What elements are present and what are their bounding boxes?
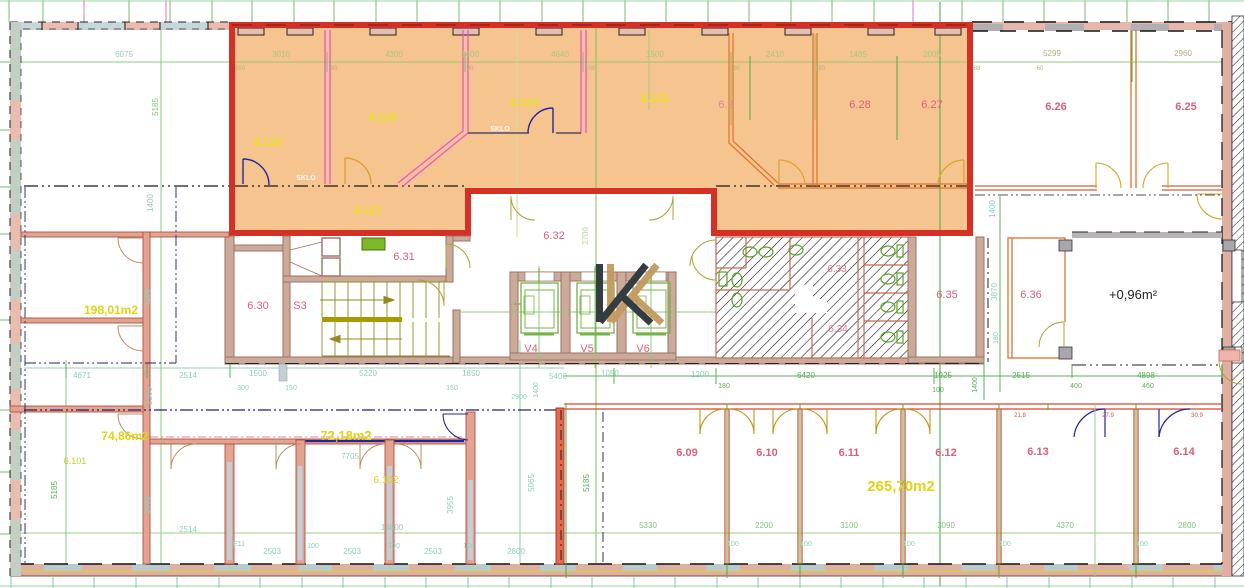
svg-text:6.35: 6.35 [936,289,957,301]
svg-text:1400: 1400 [146,194,155,212]
svg-text:5299: 5299 [1043,49,1061,58]
svg-text:30.9: 30.9 [1191,413,1203,419]
svg-text:1925: 1925 [934,371,952,380]
svg-text:V5: V5 [580,343,593,355]
svg-text:3955: 3955 [446,496,455,514]
svg-text:60: 60 [1037,66,1044,72]
svg-text:6.30: 6.30 [247,300,268,312]
svg-text:3985: 3985 [143,496,152,514]
svg-text:100: 100 [388,543,400,550]
svg-text:1200: 1200 [691,370,709,379]
svg-text:2200: 2200 [755,521,773,530]
svg-text:6.124: 6.124 [510,97,538,109]
svg-text:21.8: 21.8 [1014,413,1026,419]
svg-text:2410: 2410 [766,50,784,59]
svg-text:90: 90 [467,66,474,72]
svg-text:V6: V6 [636,343,649,355]
svg-text:2514: 2514 [179,371,197,380]
svg-text:6420: 6420 [797,371,815,380]
svg-text:1400: 1400 [972,377,979,393]
svg-text:6.09: 6.09 [676,447,697,459]
svg-text:1400: 1400 [988,200,997,218]
svg-text:4370: 4370 [1056,521,1074,530]
svg-text:6.127: 6.127 [354,205,382,217]
svg-text:100: 100 [463,543,475,550]
svg-text:265,70m2: 265,70m2 [867,478,935,495]
svg-text:7705: 7705 [341,452,359,461]
svg-text:100: 100 [800,541,812,548]
svg-text:4300: 4300 [385,50,403,59]
svg-text:4640: 4640 [551,50,569,59]
svg-text:198,01m2: 198,01m2 [84,303,138,317]
svg-text:3010: 3010 [272,50,290,59]
svg-text:88: 88 [974,66,981,72]
svg-text:6.14: 6.14 [1173,446,1195,458]
svg-text:1500: 1500 [249,369,267,378]
svg-text:6.34: 6.34 [828,324,848,335]
svg-text:100: 100 [727,541,739,548]
svg-text:5185: 5185 [50,481,59,499]
svg-text:SKLO: SKLO [296,175,316,182]
svg-text:100: 100 [307,543,319,550]
svg-text:6075: 6075 [115,50,133,59]
svg-text:5400: 5400 [549,372,567,381]
svg-text:6.102: 6.102 [373,475,398,486]
svg-text:2503: 2503 [263,547,281,556]
svg-text:6.101: 6.101 [64,456,87,466]
svg-text:6.11: 6.11 [839,447,860,459]
svg-text:6.26: 6.26 [1045,101,1066,113]
svg-text:6.33: 6.33 [827,264,847,275]
svg-text:180: 180 [718,383,730,390]
svg-text:S3: S3 [293,300,306,312]
svg-text:V4: V4 [524,343,537,355]
svg-text:5185: 5185 [582,474,591,492]
svg-text:2500: 2500 [145,387,154,405]
svg-text:6.125: 6.125 [369,112,397,124]
svg-text:E11: E11 [233,541,245,548]
svg-text:1400: 1400 [533,382,540,398]
svg-text:3870: 3870 [990,283,999,301]
svg-text:90: 90 [734,66,741,72]
svg-text:2700: 2700 [581,227,590,245]
svg-text:14600: 14600 [381,523,404,532]
svg-text:SKLO: SKLO [490,126,510,133]
svg-text:1050: 1050 [601,369,619,378]
svg-text:6.2: 6.2 [718,99,733,111]
svg-text:5330: 5330 [639,521,657,530]
svg-text:4898: 4898 [1137,371,1155,380]
svg-text:5065: 5065 [527,474,536,492]
svg-text:100: 100 [903,541,915,548]
svg-text:2005: 2005 [923,50,941,59]
svg-text:1485: 1485 [849,50,867,59]
svg-text:74,86m2: 74,86m2 [101,429,149,443]
svg-text:+0,96m²: +0,96m² [1109,287,1158,302]
svg-text:2900: 2900 [511,394,527,401]
svg-text:2503: 2503 [424,547,442,556]
svg-text:6.32: 6.32 [543,230,564,242]
svg-text:2960: 2960 [1174,49,1192,58]
svg-text:6.31: 6.31 [393,251,414,263]
svg-text:2503: 2503 [343,547,361,556]
svg-text:100: 100 [932,387,944,394]
svg-text:180: 180 [815,66,826,72]
svg-text:6.123: 6.123 [641,93,669,105]
svg-text:4188: 4188 [143,289,152,307]
svg-text:6.36: 6.36 [1020,289,1041,301]
svg-text:27.9: 27.9 [1102,413,1114,419]
svg-text:4671: 4671 [73,371,91,380]
svg-text:5185: 5185 [151,98,160,116]
svg-text:6.10: 6.10 [756,447,777,459]
svg-text:2515: 2515 [1012,371,1030,380]
svg-text:6.25: 6.25 [1175,101,1196,113]
svg-text:6.28: 6.28 [849,99,870,111]
svg-text:100: 100 [1136,541,1148,548]
svg-text:150: 150 [285,385,297,392]
svg-text:5220: 5220 [359,369,377,378]
svg-text:2800: 2800 [507,547,525,556]
svg-text:300: 300 [237,385,249,392]
svg-text:6.27: 6.27 [921,99,942,111]
svg-text:3090: 3090 [937,521,955,530]
svg-text:72,18m2: 72,18m2 [320,428,371,443]
svg-text:6.128: 6.128 [254,137,282,149]
svg-text:400: 400 [1070,383,1082,390]
svg-text:100: 100 [999,541,1011,548]
svg-text:1850: 1850 [462,369,480,378]
svg-text:6.12: 6.12 [935,447,956,459]
svg-text:90: 90 [331,66,338,72]
svg-text:1500: 1500 [646,50,664,59]
svg-text:1400: 1400 [461,50,479,59]
svg-text:3100: 3100 [840,521,858,530]
svg-text:6.13: 6.13 [1027,446,1048,458]
svg-text:2800: 2800 [1178,521,1196,530]
svg-text:150: 150 [585,66,596,72]
svg-text:460: 460 [1142,383,1154,390]
svg-text:150: 150 [446,385,458,392]
svg-text:180: 180 [993,332,1000,344]
svg-text:2514: 2514 [179,525,197,534]
svg-text:150: 150 [235,66,246,72]
